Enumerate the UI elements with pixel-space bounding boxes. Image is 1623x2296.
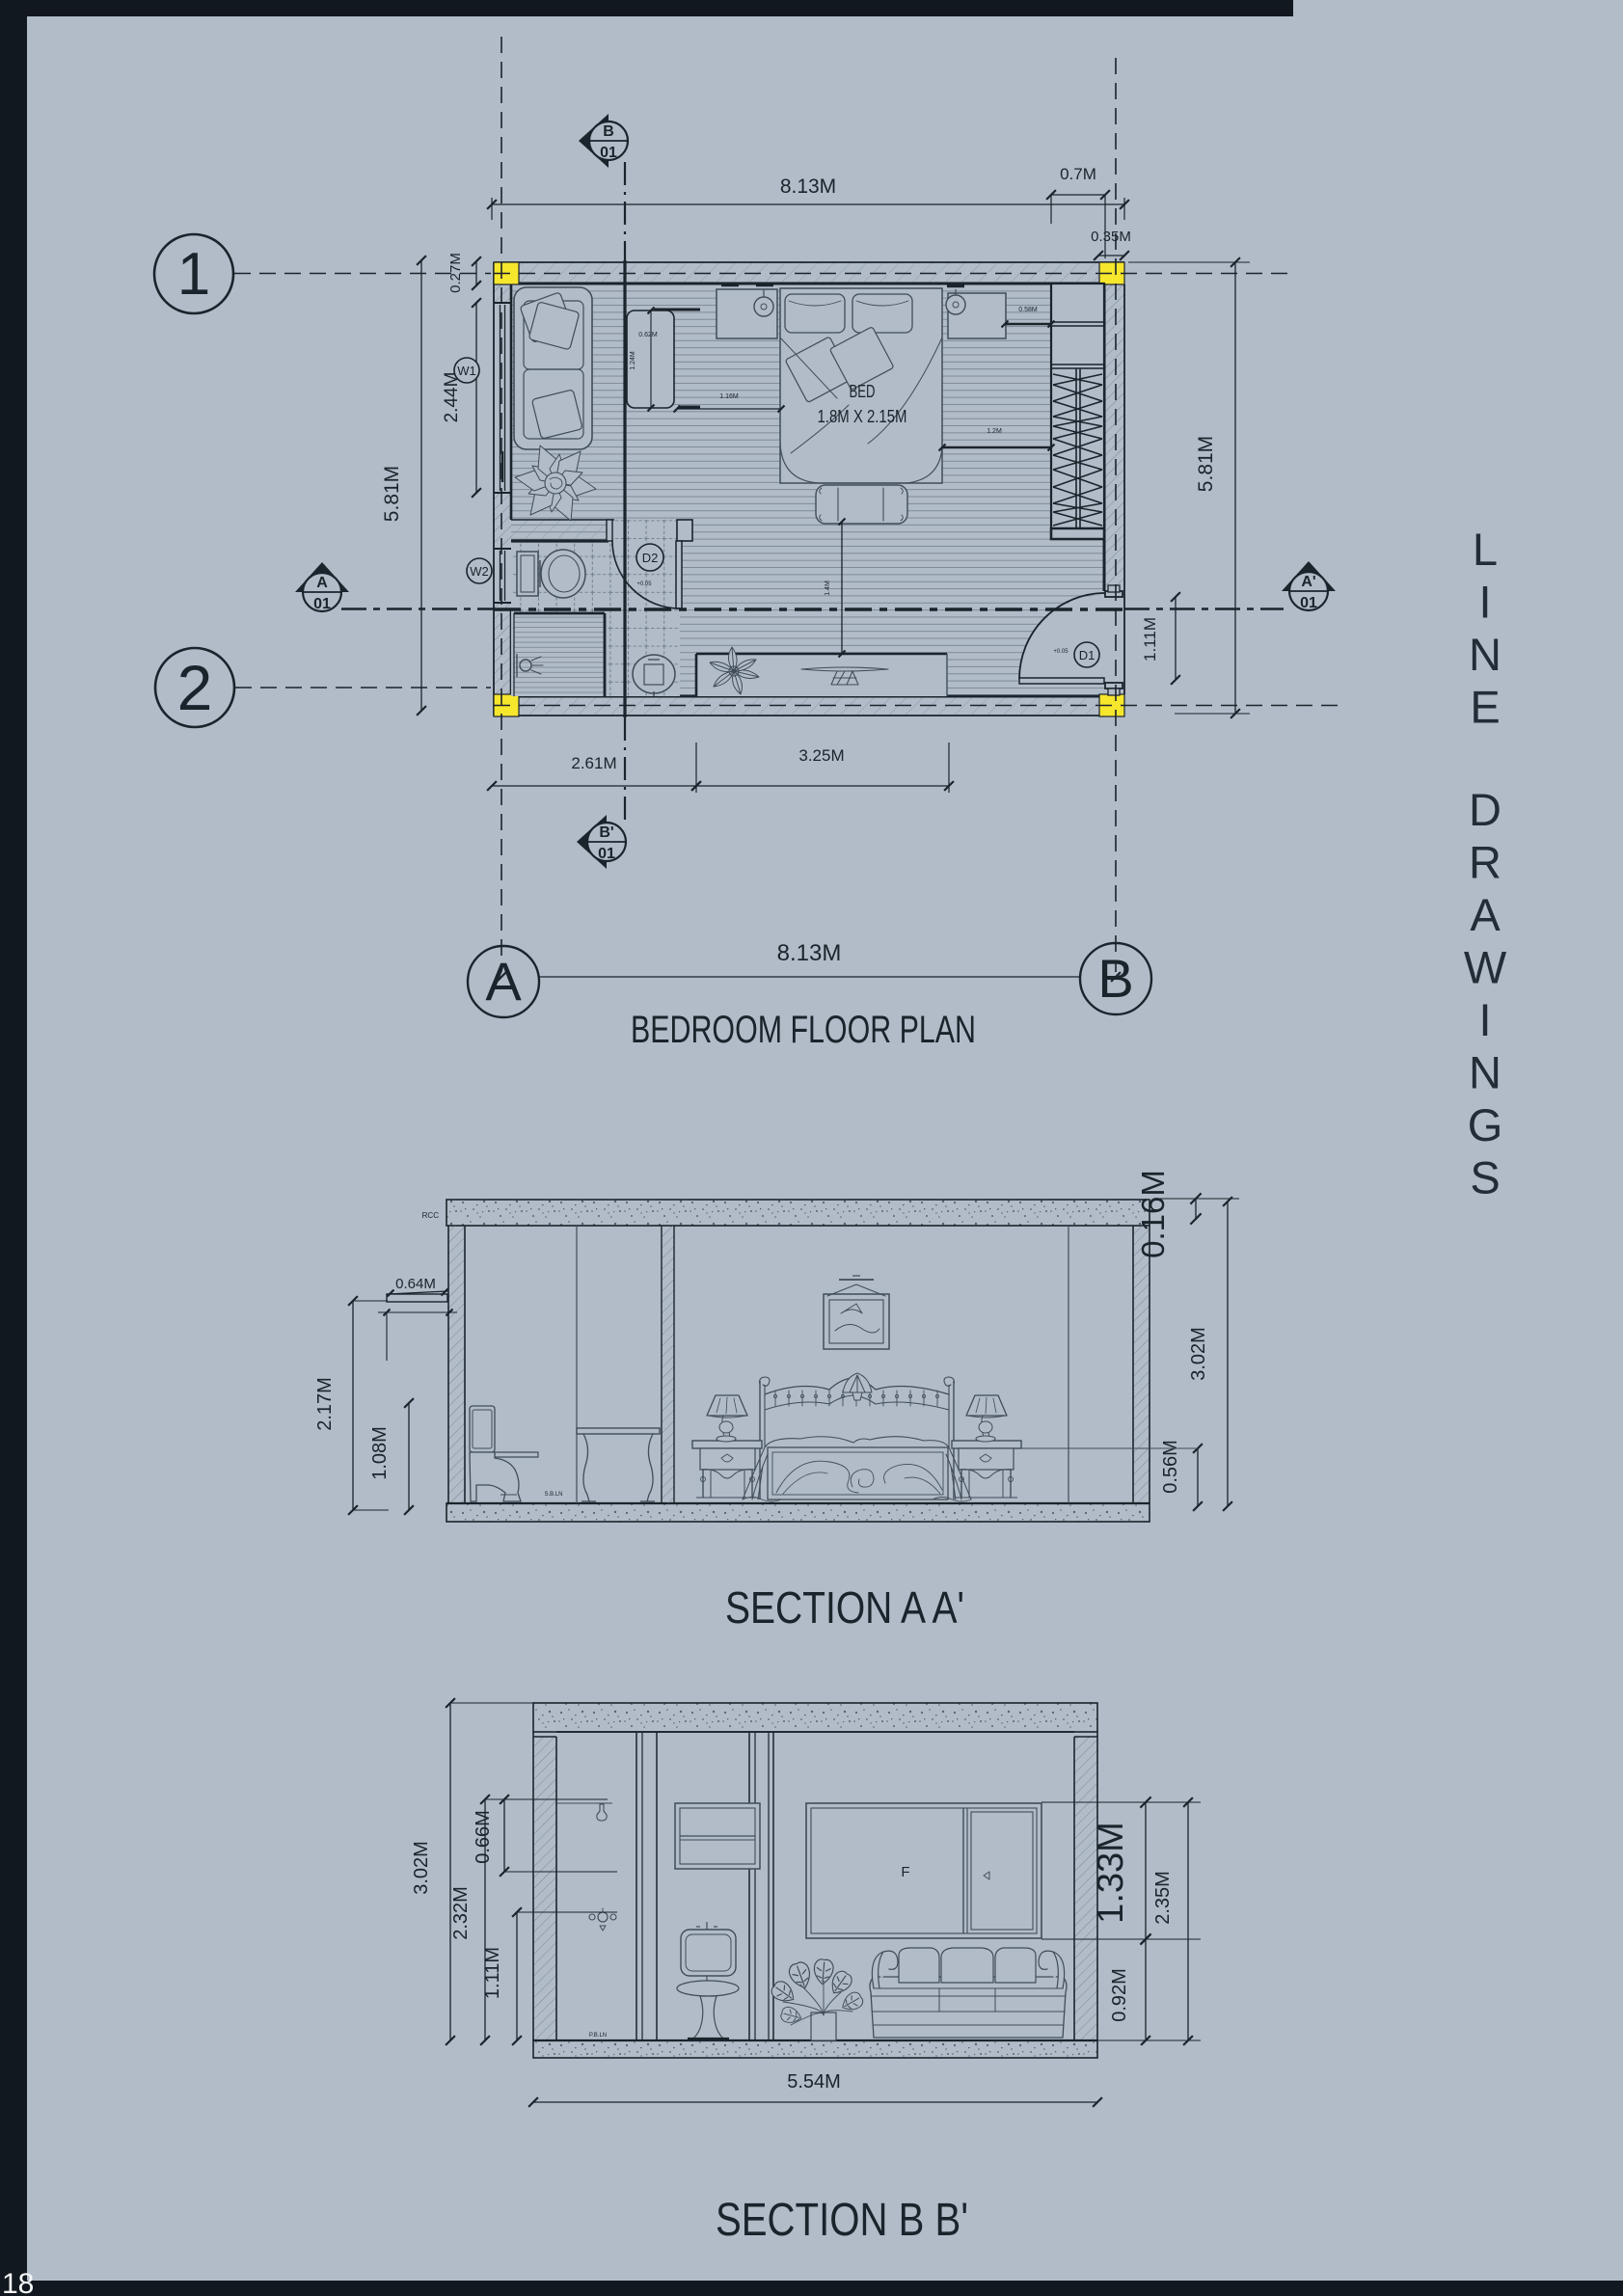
svg-text:W: W	[1464, 942, 1507, 993]
svg-text:5.81M: 5.81M	[1195, 436, 1217, 492]
svg-text:0.92M: 0.92M	[1109, 1968, 1130, 2022]
svg-text:A': A'	[1301, 574, 1315, 590]
svg-text:D: D	[1469, 784, 1501, 835]
svg-text:0.62M: 0.62M	[638, 332, 658, 338]
svg-text:E: E	[1470, 682, 1500, 733]
svg-text:1.16M: 1.16M	[719, 393, 739, 400]
svg-text:A: A	[1470, 889, 1501, 940]
svg-text:18: 18	[2, 2268, 34, 2296]
svg-text:2.17M: 2.17M	[314, 1377, 336, 1431]
svg-text:01: 01	[598, 846, 615, 862]
svg-text:1.08M: 1.08M	[369, 1426, 391, 1480]
svg-text:0.27M: 0.27M	[447, 253, 464, 293]
svg-text:N: N	[1469, 1047, 1501, 1098]
svg-text:3.02M: 3.02M	[411, 1841, 432, 1895]
svg-text:S.B.LN: S.B.LN	[544, 1492, 562, 1498]
svg-text:F: F	[901, 1864, 909, 1880]
svg-text:01: 01	[313, 596, 331, 612]
svg-text:0.35M: 0.35M	[1091, 229, 1131, 245]
svg-text:B: B	[603, 123, 614, 140]
svg-text:1.11M: 1.11M	[1141, 617, 1159, 662]
svg-text:N: N	[1469, 629, 1501, 680]
svg-text:I: I	[1478, 994, 1491, 1045]
svg-text:W2: W2	[470, 564, 489, 579]
svg-text:8.13M: 8.13M	[780, 176, 836, 198]
svg-text:D1: D1	[1079, 648, 1096, 662]
svg-text:2.61M: 2.61M	[571, 754, 616, 772]
svg-text:I: I	[1478, 577, 1491, 628]
svg-text:1.2M: 1.2M	[987, 428, 1002, 435]
svg-text:A: A	[316, 575, 328, 591]
svg-text:+0.05: +0.05	[1053, 649, 1068, 655]
svg-text:5.54M: 5.54M	[787, 2071, 841, 2093]
svg-text:0.66M: 0.66M	[473, 1810, 494, 1864]
svg-text:1.24M: 1.24M	[630, 351, 636, 370]
svg-text:BEDROOM FLOOR PLAN: BEDROOM FLOOR PLAN	[631, 1009, 976, 1051]
svg-text:3.02M: 3.02M	[1188, 1327, 1209, 1381]
svg-text:RCC: RCC	[422, 1211, 440, 1220]
svg-text:1.4M: 1.4M	[825, 581, 831, 596]
svg-text:3.25M: 3.25M	[798, 746, 844, 765]
svg-text:5.81M: 5.81M	[381, 466, 403, 522]
svg-text:1.33M: 1.33M	[1091, 1822, 1131, 1924]
svg-text:01: 01	[1300, 595, 1317, 611]
svg-text:0.7M: 0.7M	[1060, 165, 1096, 183]
svg-text:SECTION B B': SECTION B B'	[716, 2195, 968, 2246]
svg-text:BED: BED	[850, 382, 876, 401]
svg-text:0.64M: 0.64M	[395, 1276, 436, 1292]
svg-text:01: 01	[600, 145, 617, 161]
svg-text:1.8M X 2.15M: 1.8M X 2.15M	[818, 407, 907, 426]
svg-text:D2: D2	[642, 551, 659, 565]
svg-text:G: G	[1468, 1099, 1503, 1150]
svg-text:2: 2	[177, 652, 213, 723]
svg-text:R: R	[1469, 837, 1501, 888]
svg-text:S: S	[1470, 1152, 1500, 1203]
svg-text:L: L	[1473, 524, 1498, 575]
svg-text:B': B'	[599, 824, 613, 841]
svg-text:1.11M: 1.11M	[482, 1947, 503, 1999]
svg-text:SECTION A A': SECTION A A'	[725, 1582, 964, 1633]
svg-text:W1: W1	[457, 364, 476, 378]
svg-text:0.16M: 0.16M	[1135, 1170, 1171, 1258]
svg-text:2.35M: 2.35M	[1152, 1871, 1174, 1925]
svg-text:8.13M: 8.13M	[777, 940, 842, 966]
svg-text:A: A	[485, 951, 522, 1012]
svg-text:+0.05: +0.05	[636, 581, 652, 587]
svg-text:1: 1	[177, 241, 210, 308]
svg-text:2.32M: 2.32M	[450, 1886, 472, 1940]
svg-text:P.B.LN: P.B.LN	[589, 2033, 607, 2039]
svg-text:0.58M: 0.58M	[1018, 307, 1038, 313]
